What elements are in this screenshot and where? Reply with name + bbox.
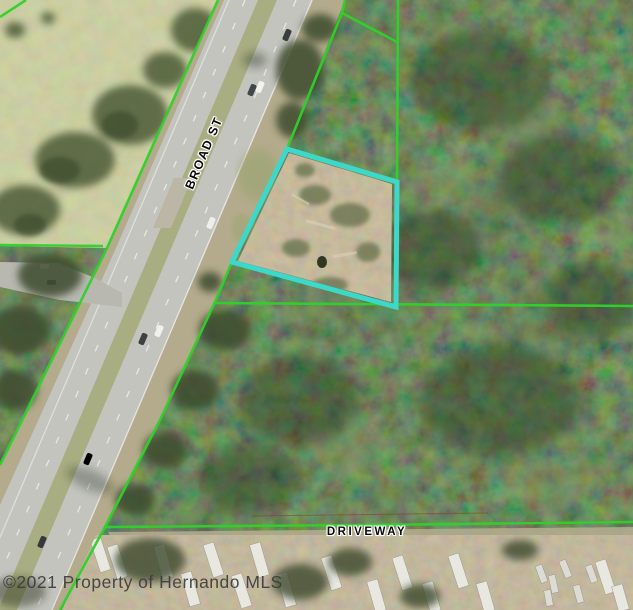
aerial-imagery	[0, 0, 633, 610]
road-label-driveway: DRIVEWAY	[327, 526, 407, 538]
mls-watermark: ©2021 Property of Hernando MLS	[3, 572, 283, 593]
parcel-line-north-vertical	[397, 0, 398, 182]
aerial-map-view: BROAD ST DRIVEWAY ©2021 Property of Hern…	[0, 0, 633, 610]
parcel-line-west-horizontal	[0, 245, 103, 246]
